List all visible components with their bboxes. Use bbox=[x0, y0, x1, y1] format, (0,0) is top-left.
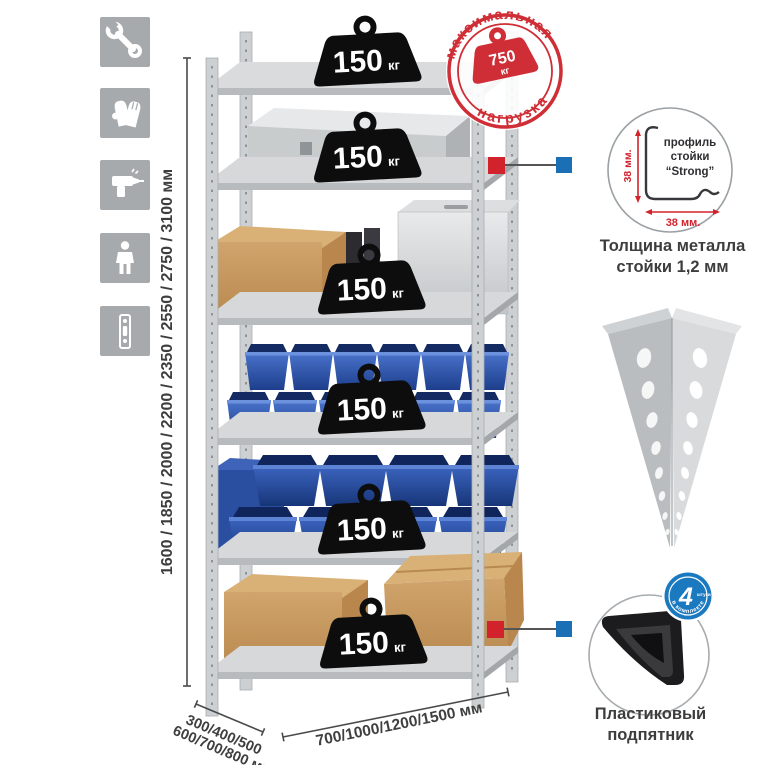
foot-callout-connector bbox=[487, 621, 572, 638]
badge-note: штуки bbox=[697, 592, 711, 597]
angle-post-image bbox=[592, 300, 752, 550]
svg-text:150: 150 bbox=[338, 626, 390, 662]
svg-text:150: 150 bbox=[332, 44, 384, 80]
red-marker-top bbox=[488, 157, 505, 174]
height-dimension: 1600 / 1850 / 2000 / 2200 / 2350 / 2550 … bbox=[159, 58, 191, 686]
blue-marker-top bbox=[556, 157, 572, 173]
svg-text:кг: кг bbox=[392, 405, 405, 421]
profile-caption: Толщина металла стойки 1,2 мм bbox=[580, 236, 765, 278]
svg-text:“Strong”: “Strong” bbox=[666, 166, 715, 178]
svg-text:кг: кг bbox=[394, 639, 407, 655]
blue-marker-bottom bbox=[556, 621, 572, 637]
shelf-load-badge-1: 150 кг bbox=[311, 16, 422, 87]
svg-text:профиль: профиль bbox=[664, 137, 717, 149]
profile-dim-vertical-label: 38 мм. bbox=[622, 149, 634, 182]
svg-text:кг: кг bbox=[388, 153, 401, 169]
foot-feature-circle: 4 штуки в комплекте bbox=[580, 566, 730, 726]
depth-dimension: 300/400/500 600/700/800 мм bbox=[170, 700, 280, 765]
included-count-badge: 4 штуки в комплекте bbox=[662, 570, 714, 622]
product-infographic: { "page": {"title": "Металлический стелл… bbox=[0, 0, 765, 765]
red-marker-bottom bbox=[487, 621, 504, 638]
svg-text:150: 150 bbox=[336, 512, 388, 548]
height-dimension-label: 1600 / 1850 / 2000 / 2200 / 2350 / 2550 … bbox=[159, 169, 176, 575]
width-dimension-label: 700/1000/1200/1500 мм bbox=[314, 699, 483, 749]
svg-text:150: 150 bbox=[336, 272, 388, 308]
svg-text:кг: кг bbox=[392, 525, 405, 541]
profile-feature-circle: 38 мм. 38 мм. профиль стойки “Strong” bbox=[608, 108, 732, 232]
profile-callout-connector bbox=[488, 157, 572, 174]
svg-text:150: 150 bbox=[336, 392, 388, 428]
profile-dim-horizontal-label: 38 мм. bbox=[666, 217, 701, 229]
svg-text:стойки: стойки bbox=[671, 151, 710, 163]
foot-caption: Пластиковый подпятник bbox=[568, 704, 733, 746]
svg-text:кг: кг bbox=[392, 285, 405, 301]
svg-text:кг: кг bbox=[388, 57, 401, 73]
svg-text:150: 150 bbox=[332, 140, 384, 176]
